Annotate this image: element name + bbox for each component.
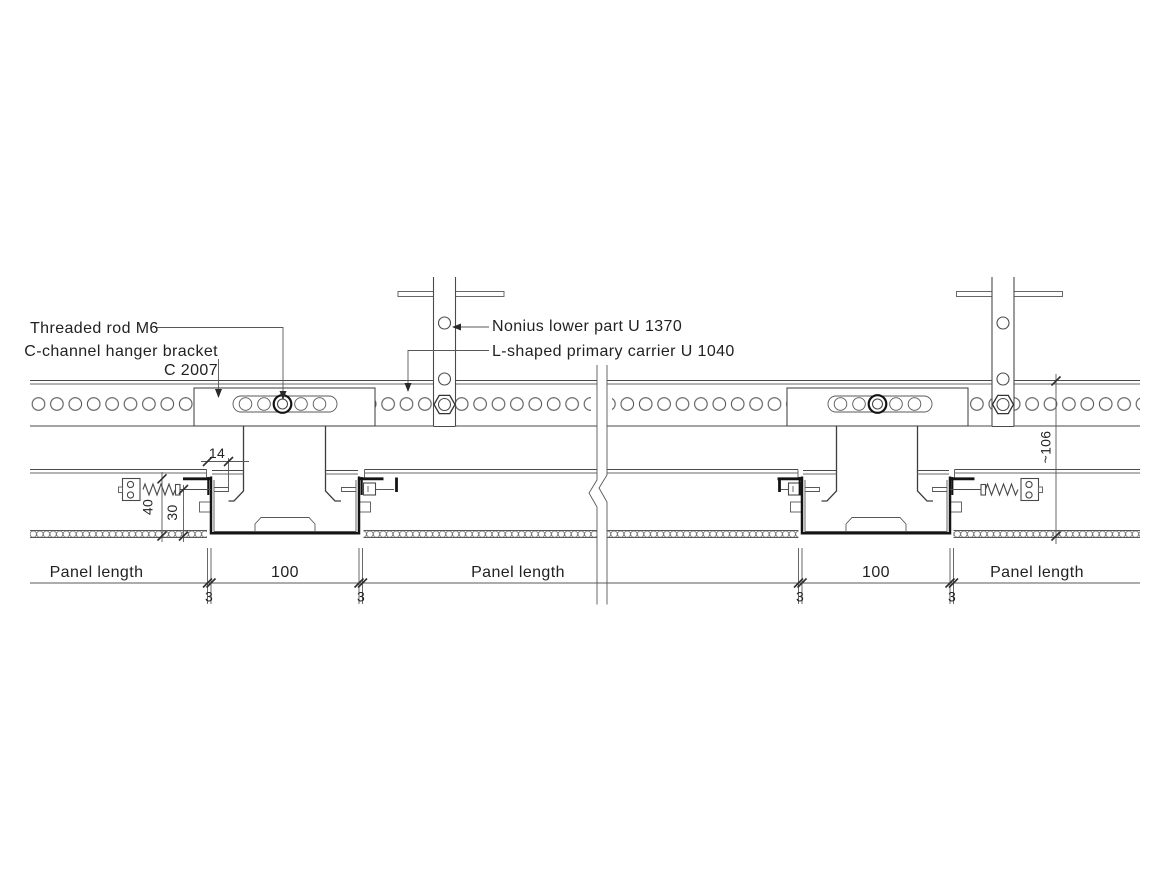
dim-100-left: 100 <box>271 564 299 581</box>
threaded-rod-end <box>869 395 887 413</box>
spring-coil <box>143 484 176 495</box>
recessed-channel-left <box>183 471 397 534</box>
dim-3-right-a: 3 <box>796 589 804 605</box>
dim-text-40: 40 <box>139 499 155 515</box>
technical-drawing: Threaded rod M6 C-channel hanger bracket… <box>0 0 1170 878</box>
bottom-dimension-band: Panel length Panel length Panel length 1… <box>30 548 1140 605</box>
dim-100-right: 100 <box>862 564 890 581</box>
label-threaded-rod: Threaded rod M6 <box>30 320 159 337</box>
spring-clamp-right <box>950 479 1043 501</box>
label-primary-carrier: L-shaped primary carrier U 1040 <box>492 343 735 360</box>
dim-text-106: ~106 <box>1037 431 1053 464</box>
panel-length-left: Panel length <box>50 564 144 581</box>
label-hanger-bracket-line1: C-channel hanger bracket <box>24 343 218 360</box>
dim-3-left-b: 3 <box>357 589 365 605</box>
hanger-bracket-right <box>787 388 968 501</box>
panel-length-right: Panel length <box>990 564 1084 581</box>
dim-3-left-a: 3 <box>205 589 213 605</box>
panel-length-middle: Panel length <box>471 564 565 581</box>
panel-face-hatch <box>30 531 1140 538</box>
ceiling-detail-drawing: Threaded rod M6 C-channel hanger bracket… <box>0 0 1170 878</box>
callouts: Threaded rod M6 C-channel hanger bracket… <box>24 318 734 400</box>
label-nonius-lower-part: Nonius lower part U 1370 <box>492 318 682 335</box>
spring-coil <box>986 484 1019 495</box>
recessed-channel-right <box>778 471 975 534</box>
dim-text-14: 14 <box>209 445 225 461</box>
break-symbol <box>589 364 607 605</box>
label-hanger-bracket-line2: C 2007 <box>164 362 218 379</box>
dim-3-right-b: 3 <box>948 589 956 605</box>
spring-clamp-left <box>119 479 212 501</box>
dim-text-30: 30 <box>164 504 180 520</box>
